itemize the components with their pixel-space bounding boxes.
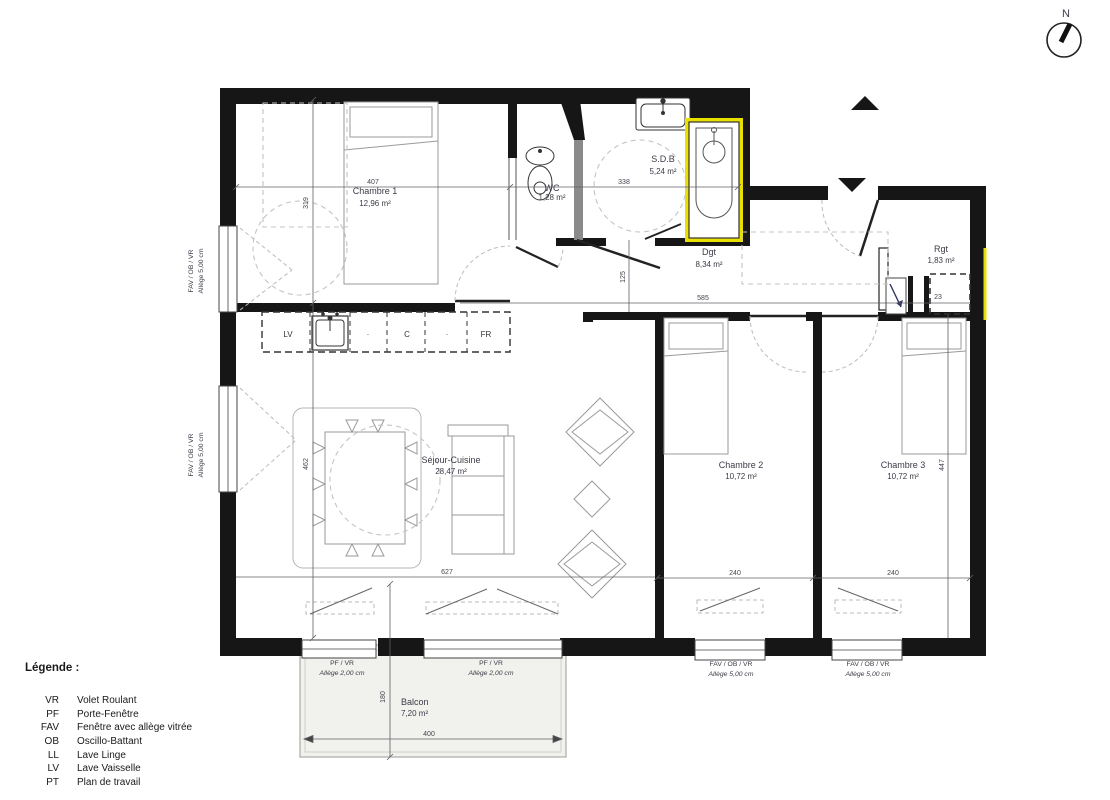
dim-447: 447	[939, 459, 946, 471]
kitchen-counter	[262, 312, 510, 352]
room-area-balcon: 7,20 m²	[401, 709, 428, 718]
kitchen-label-c: C	[404, 330, 410, 339]
window-label-ch2-type: FAV / OB / VR	[710, 661, 753, 668]
bed-chambre3	[902, 318, 966, 454]
room-label-chambre2: Chambre 2	[719, 460, 764, 470]
dim-319: 319	[303, 197, 310, 209]
window-label-left2-type: FAV / OB / VR	[188, 433, 195, 476]
window-label-pf1-allege: Allège 2,00 cm	[319, 670, 365, 677]
legend-row: PTPlan de travail	[25, 778, 192, 792]
wc-sdb-partition	[574, 140, 583, 240]
dim-400: 400	[423, 731, 435, 738]
furniture	[293, 102, 966, 598]
room-area-sejour: 28,47 m²	[435, 467, 467, 476]
compass: N	[1047, 8, 1081, 57]
legend: Légende : VRVolet Roulant PFPorte-Fenêtr…	[25, 662, 192, 792]
chambre2-door	[750, 316, 806, 372]
kitchen-sink	[312, 313, 348, 350]
party-wall-highlight	[984, 248, 987, 320]
chambre3-door	[822, 316, 878, 372]
room-area-sdb: 5,24 m²	[649, 167, 676, 176]
room-area-chambre1: 12,96 m²	[359, 199, 391, 208]
dim-627: 627	[441, 569, 453, 576]
room-area-chambre3: 10,72 m²	[887, 472, 919, 481]
arrow-down-icon	[838, 178, 866, 192]
room-label-rgt: Rgt	[934, 244, 949, 254]
compass-needle-icon	[1061, 24, 1070, 42]
left-window-1	[219, 226, 237, 312]
washing-machine	[886, 278, 906, 314]
floor-plan-page: Chambre 1 12,96 m² WC 1,28 m² S.D.B 5,24…	[0, 0, 1110, 800]
kitchen-label-dot2: .	[446, 328, 448, 337]
legend-row: PFPorte-Fenêtre	[25, 710, 192, 724]
kitchen-label-dot1: .	[367, 328, 369, 337]
window-label-pf1-type: PF / VR	[330, 660, 354, 667]
legend-row: OBOscillo-Battant	[25, 737, 192, 751]
balcony-door-1	[302, 640, 376, 658]
sofa	[448, 425, 514, 554]
dim-180: 180	[380, 691, 387, 703]
chambre3-window	[832, 640, 902, 660]
legend-title: Légende :	[25, 662, 192, 674]
dim-462: 462	[303, 458, 310, 470]
room-label-sejour: Séjour-Cuisine	[421, 455, 480, 465]
windows	[219, 226, 902, 660]
window-label-left2-allege: Allège 5,00 cm	[198, 432, 205, 477]
compass-north-label: N	[1062, 8, 1070, 20]
window-label-left1-type: FAV / OB / VR	[188, 249, 195, 292]
window-label-pf2-type: PF / VR	[479, 660, 503, 667]
window-label-ch2-allege: Allège 5,00 cm	[708, 671, 754, 678]
chambre1-door	[455, 246, 510, 301]
bathroom-sink	[636, 98, 690, 130]
legend-table: VRVolet Roulant PFPorte-Fenêtre FAVFenêt…	[25, 696, 192, 792]
dim-125: 125	[620, 271, 627, 283]
legend-row: LLLave Linge	[25, 751, 192, 765]
wc-door-wall-lines	[509, 158, 516, 240]
room-label-chambre3: Chambre 3	[881, 460, 926, 470]
dim-240b: 240	[887, 570, 899, 577]
room-label-chambre1: Chambre 1	[353, 186, 398, 196]
dim-240a: 240	[729, 570, 741, 577]
legend-row: LVLave Vaisselle	[25, 764, 192, 778]
legend-row: FAVFenêtre avec allège vitrée	[25, 723, 192, 737]
wc-door	[516, 247, 563, 267]
room-label-wc: WC	[545, 183, 560, 193]
chambre2-window	[695, 640, 765, 660]
window-label-ch3-type: FAV / OB / VR	[847, 661, 890, 668]
dim-407: 407	[367, 179, 379, 186]
balcony-door-2	[424, 640, 562, 658]
dim-23: 23	[934, 294, 942, 301]
kitchen-label-lv: LV	[283, 330, 293, 339]
arrow-up-icon	[851, 96, 879, 110]
window-label-pf2-allege: Allège 2,00 cm	[468, 670, 514, 677]
bed-chambre2	[664, 318, 728, 454]
window-label-ch3-allege: Allège 5,00 cm	[845, 671, 891, 678]
window-label-left1-allege: Allège 5,00 cm	[198, 248, 205, 293]
dim-585: 585	[697, 295, 709, 302]
dim-338: 338	[618, 179, 630, 186]
room-area-wc: 1,28 m²	[538, 193, 565, 202]
entrance-arrows	[838, 96, 879, 192]
dining-area	[293, 408, 421, 568]
legend-row: VRVolet Roulant	[25, 696, 192, 710]
kitchen-label-fr: FR	[481, 330, 492, 339]
room-label-balcon: Balcon	[401, 697, 429, 707]
room-label-dgt: Dgt	[702, 247, 717, 257]
room-area-dgt: 8,34 m²	[695, 260, 722, 269]
bathtub	[687, 120, 741, 240]
left-window-2	[219, 386, 237, 492]
room-area-rgt: 1,83 m²	[927, 256, 954, 265]
armchairs	[558, 398, 634, 598]
entrance-door	[822, 200, 878, 256]
room-area-chambre2: 10,72 m²	[725, 472, 757, 481]
room-label-sdb: S.D.B	[651, 154, 675, 164]
